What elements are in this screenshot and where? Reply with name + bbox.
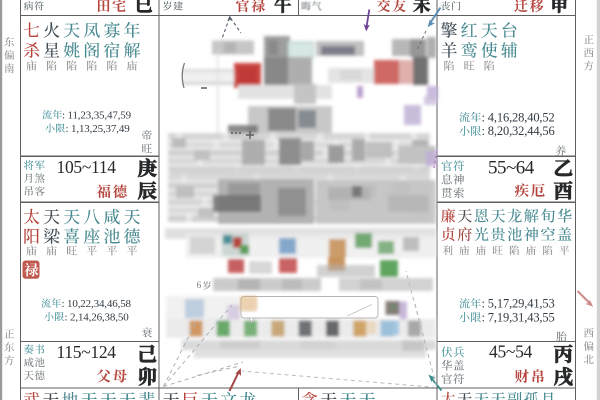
svg-text:: 10,22,34,46,58: : 10,22,34,46,58: [62, 298, 132, 310]
svg-text:: 4,16,28,40,52: : 4,16,28,40,52: [482, 110, 555, 124]
svg-text:: 1,13,25,37,49: : 1,13,25,37,49: [66, 123, 131, 135]
svg-text:: 11,23,35,47,59: : 11,23,35,47,59: [62, 110, 132, 122]
svg-text:: 5,17,29,41,53: : 5,17,29,41,53: [482, 297, 555, 311]
svg-text:45~54: 45~54: [489, 342, 533, 362]
svg-text:: 2,14,26,38,50: : 2,14,26,38,50: [65, 312, 130, 324]
svg-text:: 7,19,31,43,55: : 7,19,31,43,55: [482, 310, 555, 324]
svg-text:115~124: 115~124: [57, 342, 117, 362]
svg-text:6: 6: [197, 281, 202, 291]
svg-text:105~114: 105~114: [57, 157, 117, 177]
svg-text:55~64: 55~64: [488, 158, 535, 179]
svg-text:: 8,20,32,44,56: : 8,20,32,44,56: [482, 124, 555, 138]
